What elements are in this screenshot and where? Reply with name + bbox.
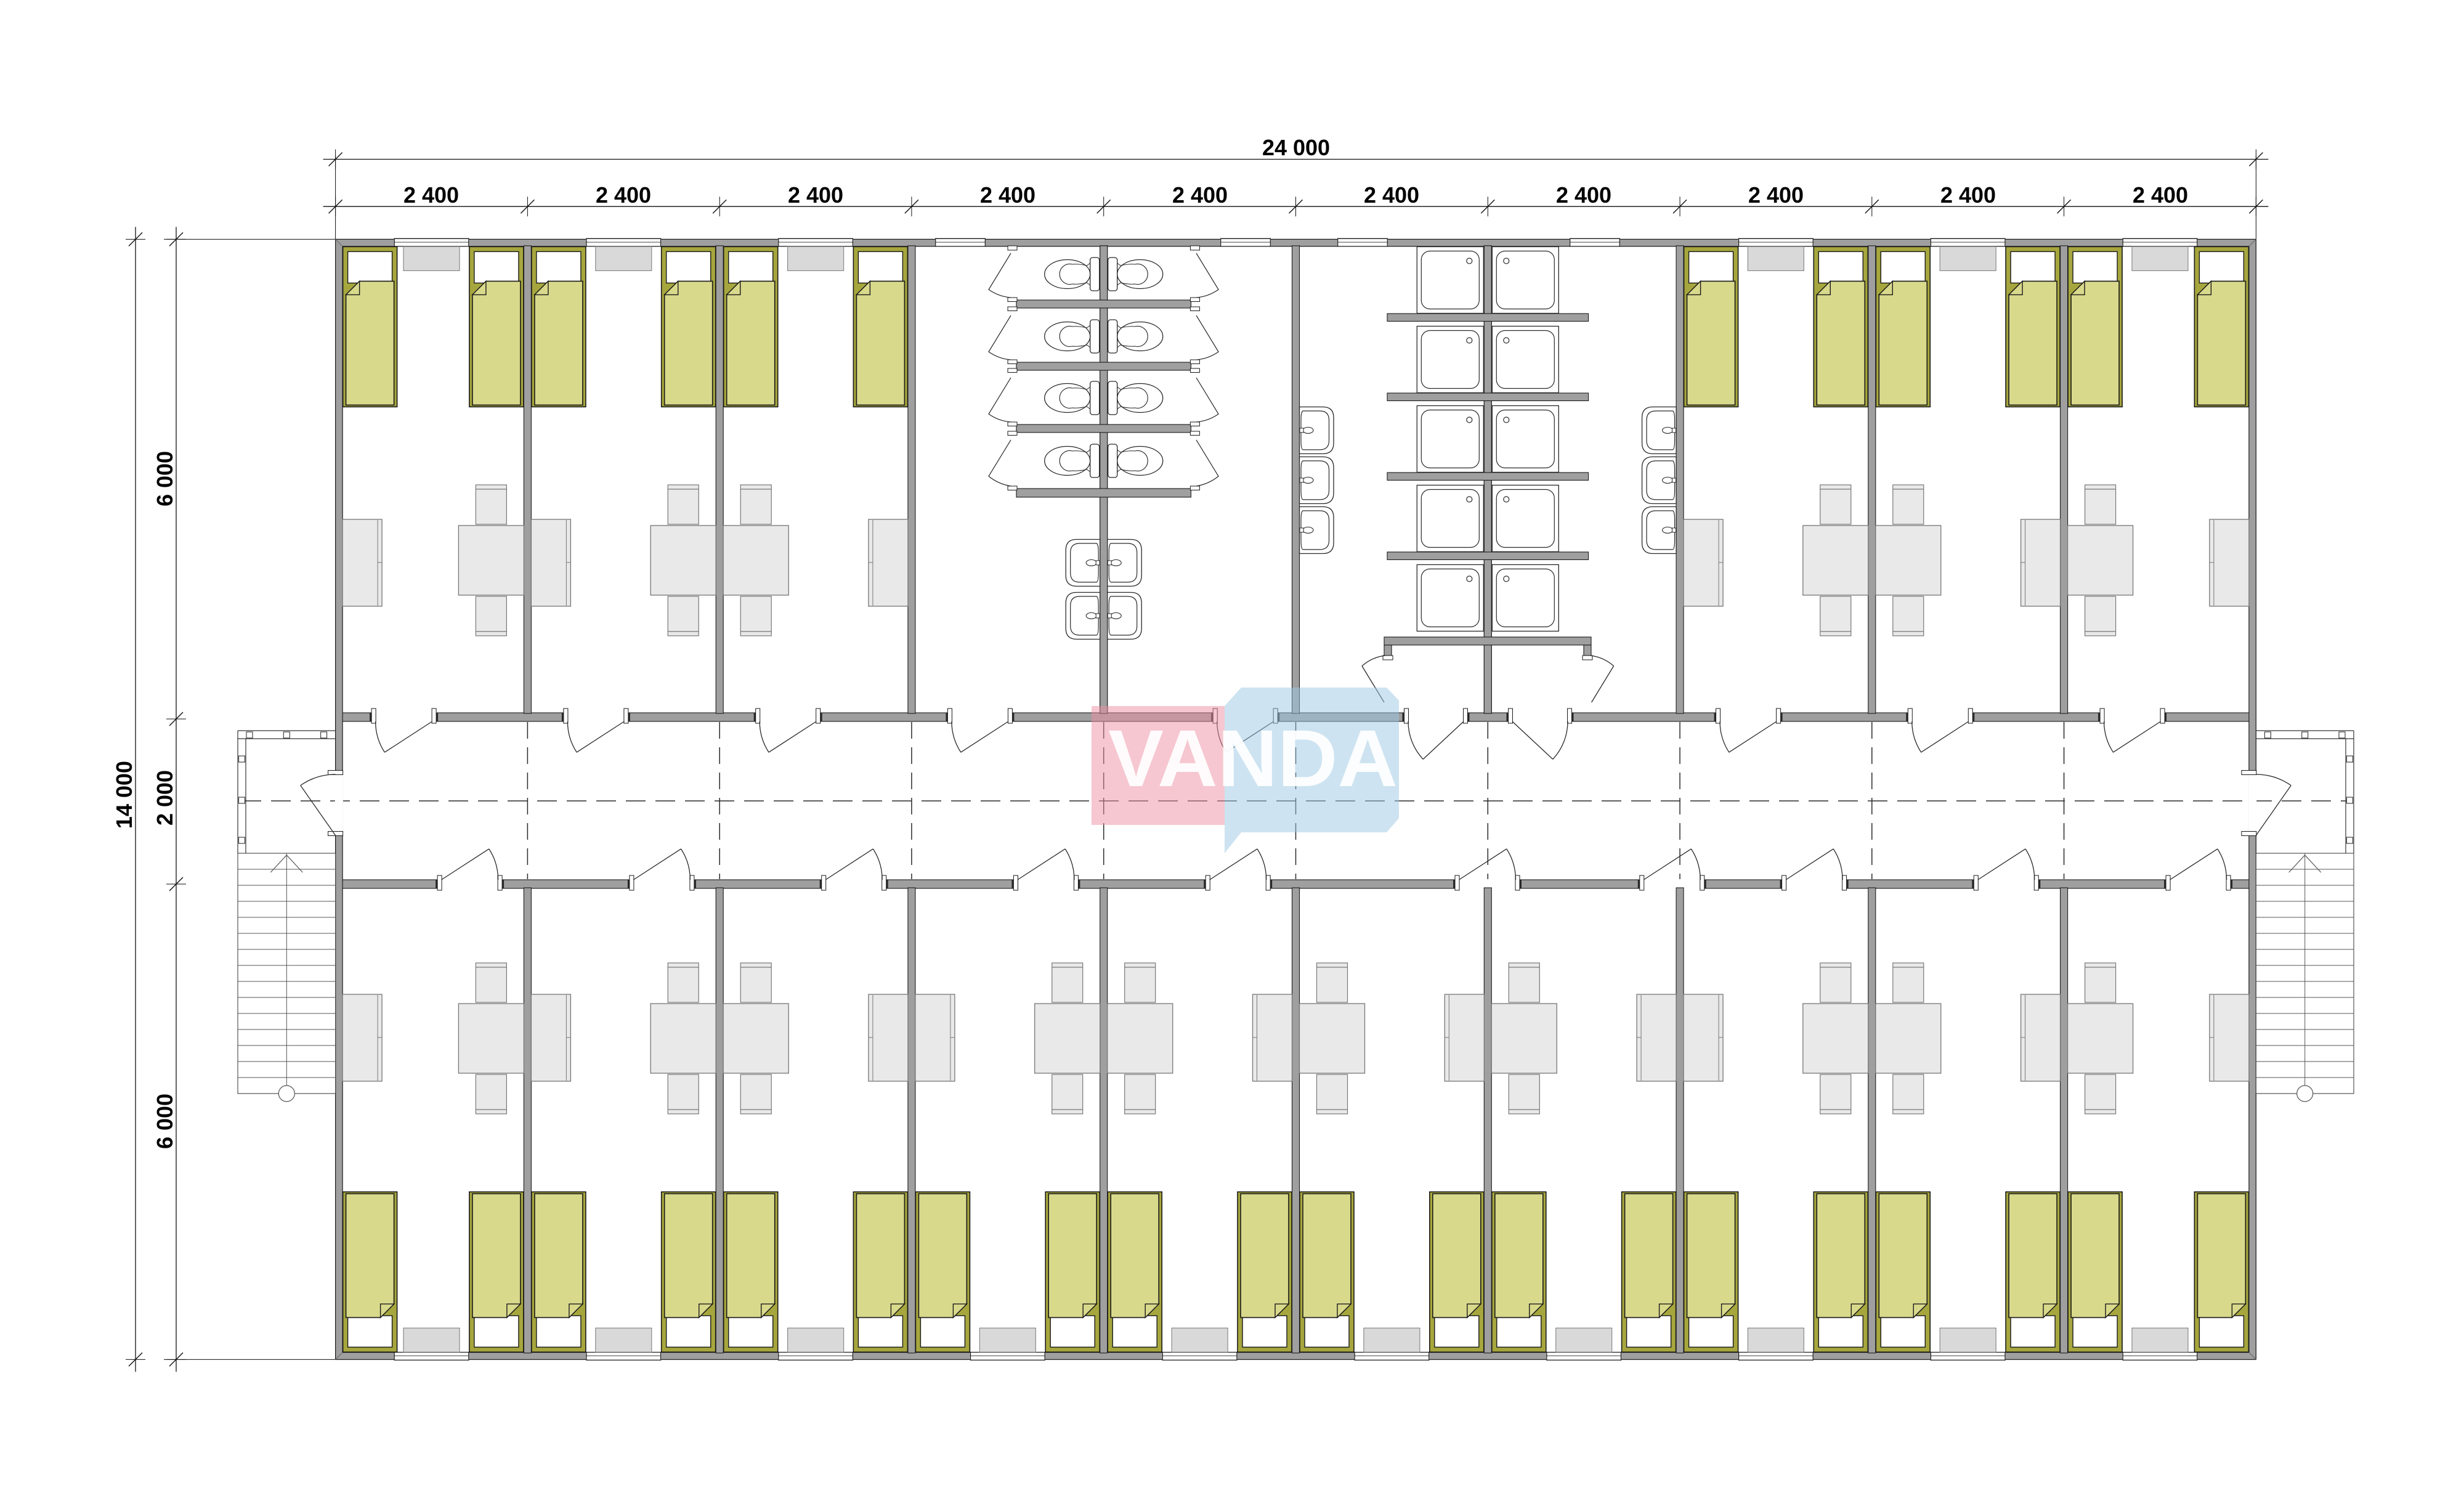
svg-text:6 000: 6 000 [152,1094,177,1149]
svg-text:2 400: 2 400 [980,182,1035,208]
svg-text:2 400: 2 400 [1748,182,1804,208]
svg-text:2 400: 2 400 [1940,182,1996,208]
svg-text:2 000: 2 000 [152,770,177,826]
svg-text:2 400: 2 400 [1364,182,1419,208]
svg-text:2 400: 2 400 [2133,182,2188,208]
svg-text:14 000: 14 000 [111,761,137,829]
svg-text:24 000: 24 000 [1262,135,1330,160]
svg-text:2 400: 2 400 [596,182,651,208]
svg-text:2 400: 2 400 [403,182,459,208]
svg-text:VANDA: VANDA [1108,713,1398,803]
svg-text:6 000: 6 000 [152,451,177,506]
svg-text:2 400: 2 400 [1172,182,1228,208]
svg-text:2 400: 2 400 [1556,182,1611,208]
svg-text:2 400: 2 400 [788,182,843,208]
